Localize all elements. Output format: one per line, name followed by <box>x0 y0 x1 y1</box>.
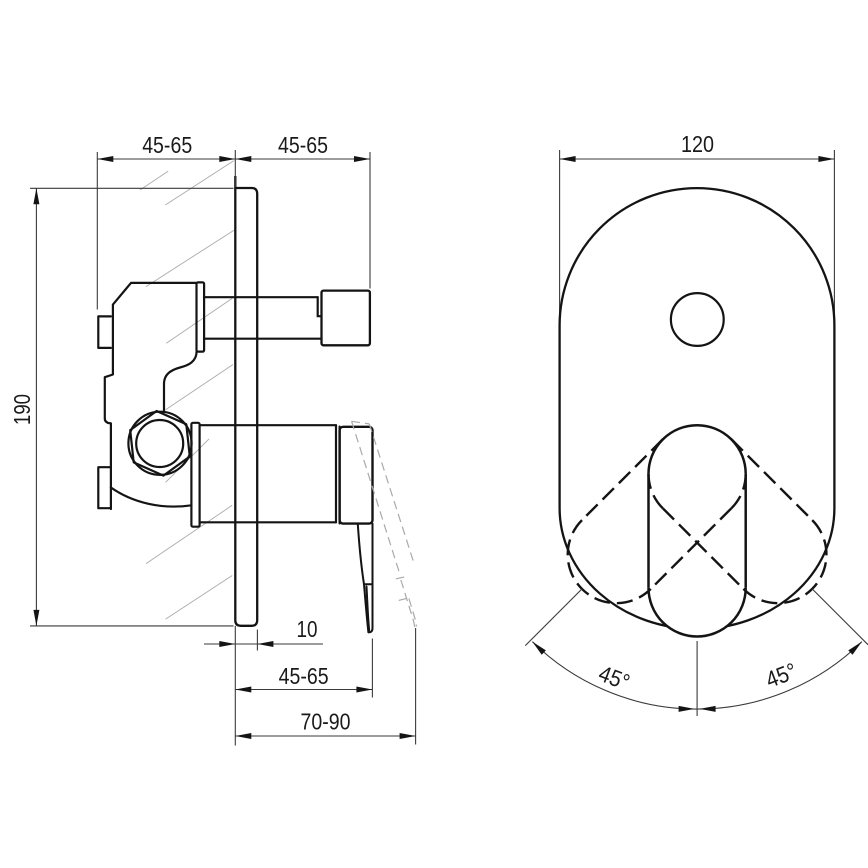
svg-text:70-90: 70-90 <box>301 709 351 735</box>
svg-text:190: 190 <box>9 394 35 425</box>
svg-text:45-65: 45-65 <box>142 132 192 158</box>
svg-text:10: 10 <box>297 616 318 642</box>
svg-text:120: 120 <box>681 131 714 157</box>
svg-text:45-65: 45-65 <box>279 663 329 689</box>
svg-text:45-65: 45-65 <box>278 132 328 158</box>
